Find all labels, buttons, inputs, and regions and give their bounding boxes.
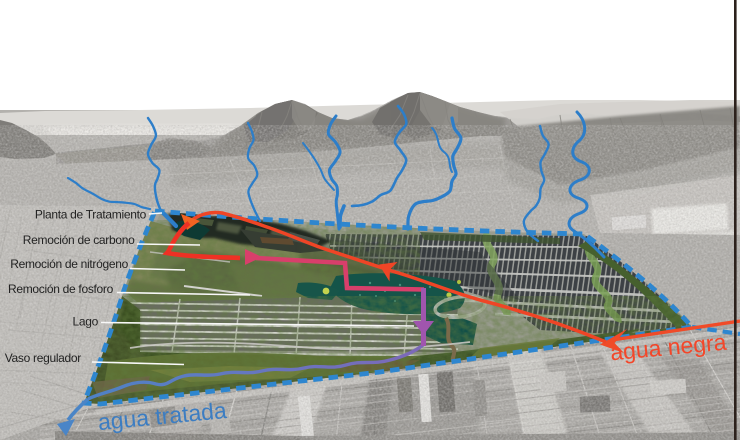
svg-text:Vaso regulador: Vaso regulador bbox=[5, 351, 82, 365]
svg-text:Lago: Lago bbox=[73, 315, 99, 329]
svg-text:Remoción de nitrógeno: Remoción de nitrógeno bbox=[10, 257, 128, 271]
svg-text:Remoción de fosforo: Remoción de fosforo bbox=[8, 282, 114, 296]
svg-text:Remoción de carbono: Remoción de carbono bbox=[23, 233, 135, 247]
svg-text:Planta de Tratamiento: Planta de Tratamiento bbox=[35, 208, 147, 222]
